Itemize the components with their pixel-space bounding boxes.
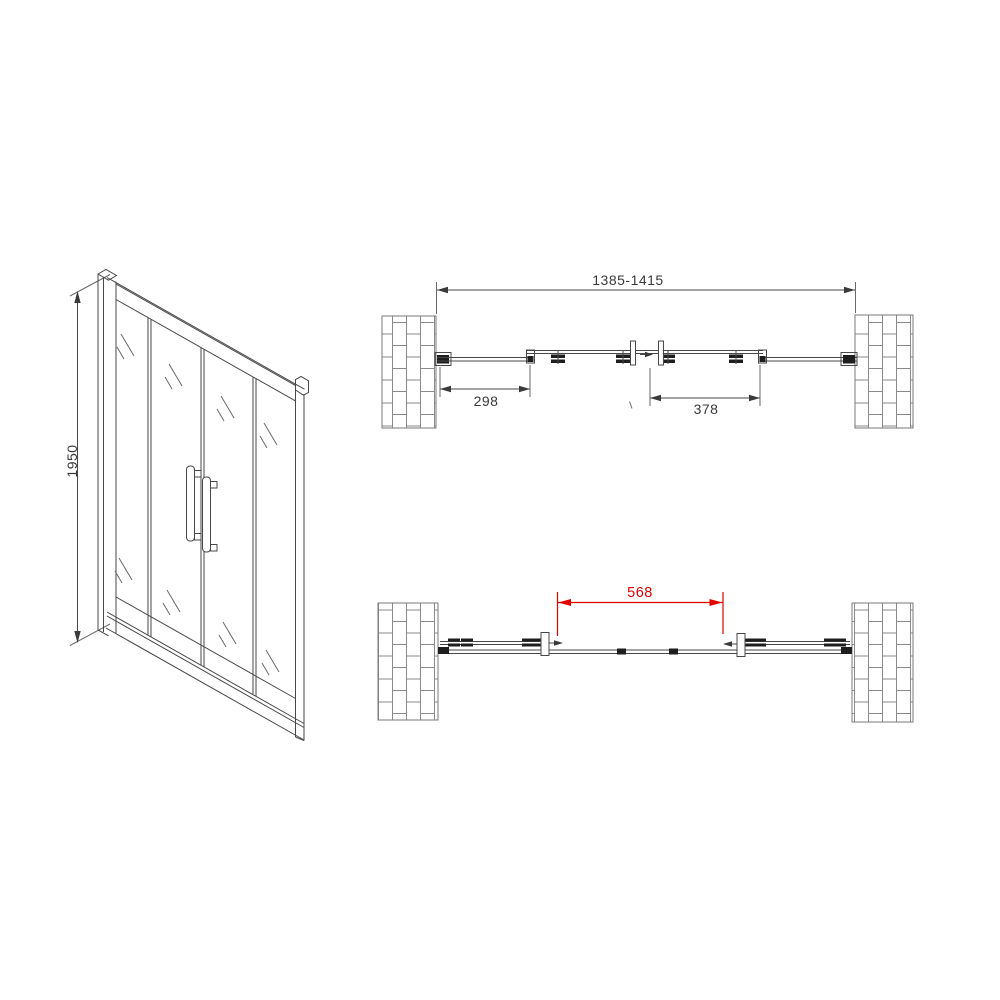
handle-bar-left	[187, 466, 195, 541]
arrow-left-icon	[650, 395, 661, 401]
track-assembly-closed	[435, 341, 857, 366]
glass-mark	[165, 364, 182, 389]
glass-mark	[217, 396, 234, 421]
glass-mark	[262, 650, 279, 675]
handle-pin	[211, 545, 218, 552]
arrow-down-icon	[74, 631, 80, 643]
overall-width-label: 1385-1415	[592, 272, 663, 288]
overall-width-dimension: 1385-1415	[437, 272, 856, 314]
arrow-right-icon	[844, 287, 855, 293]
front-view: 1950	[64, 270, 309, 741]
roller	[616, 351, 630, 364]
door-stack-left	[438, 633, 563, 656]
roller	[461, 639, 473, 647]
track-clip	[669, 649, 678, 655]
handle-pin	[195, 471, 202, 478]
slide-direction-arrow-icon	[645, 352, 653, 357]
handle-post	[541, 633, 549, 656]
height-dimension-label: 1950	[64, 444, 80, 477]
roller	[448, 639, 460, 647]
opening-width-label: 568	[627, 585, 653, 601]
handle-bar-right	[203, 477, 211, 552]
sliding-door-dimension: 378	[630, 365, 761, 417]
roller	[834, 639, 846, 647]
glass-mark	[115, 558, 132, 583]
arrow-left-icon	[437, 287, 448, 293]
handle-pin	[195, 534, 202, 541]
arrow-right-icon	[519, 386, 530, 392]
left-panel-width-label: 298	[474, 393, 499, 409]
brick-wall-left	[378, 603, 438, 720]
bottom-track-open	[438, 649, 852, 655]
left-panel-dimension: 298	[440, 365, 530, 409]
arrow-left-icon	[440, 386, 451, 392]
technical-drawing-page: 1950	[0, 0, 1000, 1000]
brick-wall-right	[852, 603, 913, 722]
arrow-right-icon	[749, 395, 760, 401]
plan-view-closed: 1385-1415	[382, 272, 913, 428]
roller	[551, 351, 565, 364]
glass-reflection-marks	[115, 334, 279, 675]
glass-mark	[219, 622, 236, 647]
glass-mark	[260, 423, 277, 448]
tick-mark	[630, 402, 633, 409]
sliding-door-width-label: 378	[694, 401, 719, 417]
slide-direction-arrow-icon	[723, 641, 732, 646]
opening-dimension-red: 568	[558, 585, 724, 636]
plan-view-open: 568	[378, 585, 913, 722]
arrow-left-icon	[558, 599, 571, 606]
roller	[729, 351, 743, 364]
handle-post	[737, 634, 745, 657]
wall-profile-left	[438, 647, 449, 654]
door-handles	[187, 466, 218, 552]
handle-post	[631, 341, 636, 365]
glass-mark	[163, 590, 180, 615]
brick-wall-right	[855, 315, 913, 428]
arrow-right-icon	[710, 599, 723, 606]
wall-profile-right	[841, 647, 852, 654]
track-clip	[617, 649, 626, 655]
handle-pin	[211, 482, 218, 489]
glass-mark	[117, 334, 134, 359]
technical-drawing-canvas: 1950	[0, 0, 1000, 1000]
brick-wall-left	[382, 316, 436, 428]
handle-post	[659, 341, 664, 365]
slide-direction-arrow-icon	[554, 640, 563, 645]
roller	[754, 639, 766, 647]
